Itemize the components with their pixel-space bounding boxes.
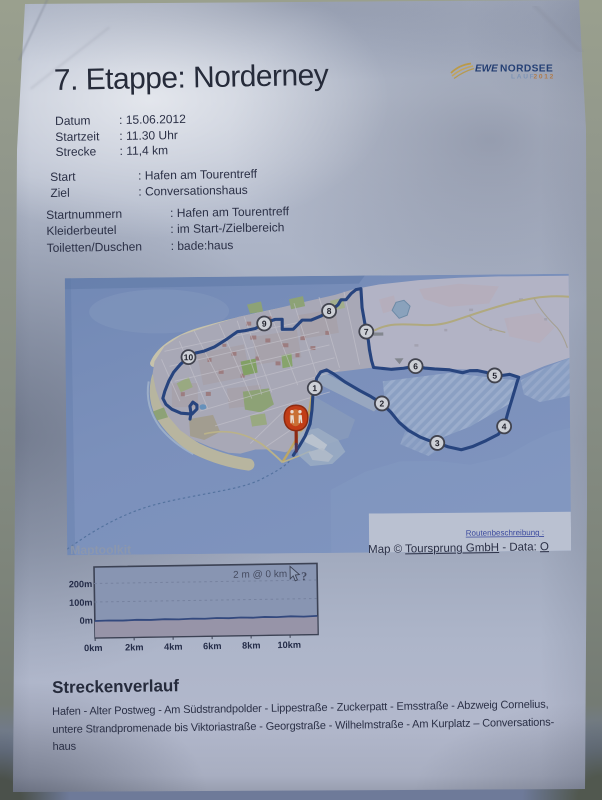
svg-text:100m: 100m <box>69 598 93 608</box>
svg-text:EWE: EWE <box>475 64 498 75</box>
svg-text:4: 4 <box>502 421 507 431</box>
svg-text:4km: 4km <box>164 642 183 652</box>
svg-text:9: 9 <box>262 319 267 329</box>
svg-text:Maptoolkit: Maptoolkit <box>70 543 131 556</box>
svg-text:200m: 200m <box>69 579 93 589</box>
svg-text:?: ? <box>301 569 307 583</box>
svg-text:10km: 10km <box>277 640 301 650</box>
svg-text:6: 6 <box>413 361 418 371</box>
svg-text:2km: 2km <box>125 642 144 652</box>
svg-text:0m: 0m <box>79 616 92 626</box>
svg-text:2: 2 <box>379 399 384 409</box>
svg-text:3: 3 <box>435 438 440 448</box>
svg-text:10: 10 <box>184 352 194 362</box>
svg-text:8: 8 <box>327 306 332 316</box>
svg-text:7: 7 <box>364 327 369 337</box>
svg-text:2012: 2012 <box>534 74 555 81</box>
svg-text:Routenbeschreibung :: Routenbeschreibung : <box>466 528 544 538</box>
svg-text:2 m @ 0 km: 2 m @ 0 km <box>233 569 287 581</box>
svg-text:LAUF: LAUF <box>511 74 535 81</box>
svg-text:6km: 6km <box>203 641 222 651</box>
svg-text:5: 5 <box>492 371 497 381</box>
svg-text:8km: 8km <box>242 640 261 650</box>
svg-text:0km: 0km <box>84 643 103 653</box>
svg-text:1: 1 <box>312 383 317 393</box>
